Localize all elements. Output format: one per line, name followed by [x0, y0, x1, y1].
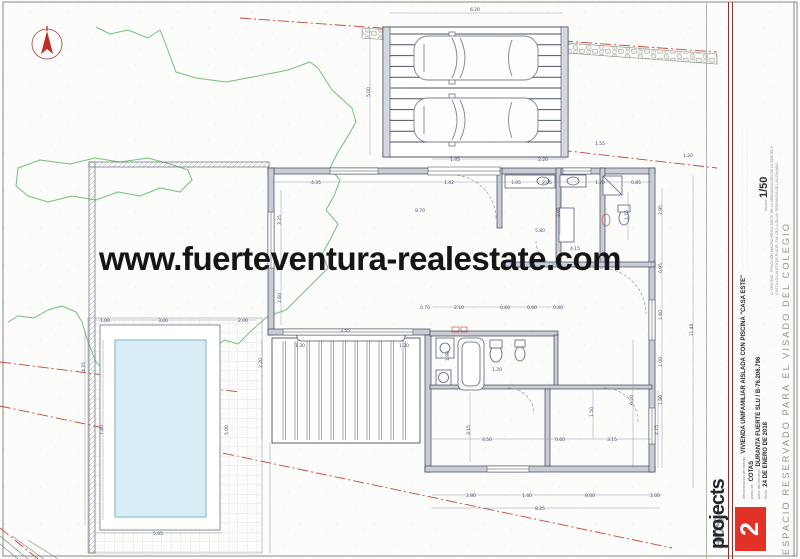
- fine-print-1: ········································…: [741, 126, 745, 267]
- logo-projects: projects: [707, 479, 730, 549]
- svg-text:1.42: 1.42: [444, 180, 454, 186]
- pool: [100, 325, 220, 530]
- sheet-number: 2: [736, 522, 765, 536]
- svg-text:5.05: 5.05: [153, 531, 163, 537]
- svg-text:8.25: 8.25: [535, 506, 545, 512]
- field-autor-label: autor del encargo: [757, 469, 761, 499]
- field-fecha-label: fecha: [764, 490, 768, 499]
- svg-text:5.00: 5.00: [366, 87, 372, 97]
- svg-text:2.05: 2.05: [556, 207, 562, 217]
- situacion-line-2: CASTILLO CALETA DE FUSTE, T.M. DE LA OLI…: [775, 162, 779, 295]
- svg-text:0.60: 0.60: [555, 437, 565, 443]
- svg-text:5.80: 5.80: [535, 228, 545, 234]
- sheet-number-badge: 2: [735, 507, 766, 551]
- fine-print-2: ········································…: [746, 126, 750, 267]
- svg-text:7.40: 7.40: [99, 425, 105, 435]
- boundary-wall-left: [89, 162, 95, 553]
- field-autor-value: DURANTA FUERTE SLU / B-76.206.796: [756, 357, 762, 467]
- bathtub: [458, 338, 484, 390]
- titleblock-separator: [706, 2, 707, 559]
- titleblock-red-rule-2: [732, 2, 733, 559]
- scale-label: escala: [764, 200, 768, 211]
- svg-text:2.10: 2.10: [454, 305, 464, 311]
- field-plano: plano deCOTAS: [749, 481, 755, 499]
- svg-text:8.70: 8.70: [415, 208, 425, 214]
- svg-text:3.15: 3.15: [466, 425, 472, 435]
- svg-text:1.20: 1.20: [683, 153, 693, 159]
- svg-text:1.50: 1.50: [589, 407, 595, 417]
- situacion-line-1: C/ CENTRAL, FRACCIÓN MACRO RESULTANTE DE…: [770, 146, 774, 295]
- svg-text:8.00: 8.00: [585, 493, 595, 499]
- svg-text:2.20: 2.20: [538, 157, 548, 163]
- svg-text:1.90: 1.90: [445, 351, 451, 361]
- svg-text:2.00: 2.00: [238, 318, 248, 324]
- svg-text:0.60: 0.60: [527, 305, 537, 311]
- svg-text:0.70: 0.70: [420, 305, 430, 311]
- svg-text:1.75: 1.75: [624, 210, 630, 220]
- titleblock-red-rule: [728, 2, 729, 559]
- svg-text:1.55: 1.55: [595, 141, 605, 147]
- boundary-wall-top: [89, 162, 269, 167]
- scale-value: 1/50: [758, 177, 770, 198]
- svg-text:3.25: 3.25: [277, 215, 283, 225]
- shower: [603, 176, 622, 195]
- svg-text:1.30: 1.30: [295, 343, 305, 349]
- svg-text:1.20: 1.20: [492, 367, 502, 373]
- drawing-sheet: 6.205.001.452.201.551.204.351.421.052.05…: [0, 0, 800, 559]
- field-fecha-value: 24 DE ENERO DE 2018: [763, 422, 769, 487]
- carport: [383, 27, 568, 157]
- field-denominacion-label: denominación del trabajo: [742, 457, 746, 499]
- title-block: acsprojects 2 denominación del trabajoVI…: [704, 2, 800, 559]
- svg-text:2.00: 2.00: [650, 493, 660, 499]
- svg-text:1.00: 1.00: [658, 357, 664, 367]
- field-plano-value: COTAS: [749, 461, 755, 482]
- svg-text:1.00: 1.00: [100, 318, 110, 324]
- svg-text:4.25: 4.25: [81, 362, 87, 372]
- field-denominacion: denominación del trabajoVIVIENDA UNIFAMI…: [741, 454, 747, 499]
- svg-text:4.35: 4.35: [311, 180, 321, 186]
- svg-text:1.60: 1.60: [658, 310, 664, 320]
- svg-text:2.80: 2.80: [466, 493, 476, 499]
- svg-text:0.40: 0.40: [553, 305, 563, 311]
- vanity-sink: [436, 338, 454, 358]
- svg-text:2.60: 2.60: [277, 293, 283, 303]
- svg-text:11.40: 11.40: [689, 324, 695, 337]
- washer: [436, 370, 451, 385]
- svg-text:0.60: 0.60: [500, 305, 510, 311]
- reserved-stamp-text: ESPACIO RESERVADO PARA EL VISADO DEL COL…: [781, 222, 791, 555]
- svg-text:2.75: 2.75: [654, 425, 660, 435]
- svg-text:1.20: 1.20: [399, 343, 409, 349]
- toilet: [490, 340, 502, 362]
- svg-text:5.00: 5.00: [224, 425, 230, 435]
- field-denominacion-value: VIVIENDA UNIFAMILIAR AISLADA CON PISCINA…: [741, 275, 747, 454]
- svg-text:4.50: 4.50: [482, 437, 492, 443]
- svg-text:2.20: 2.20: [258, 358, 264, 368]
- floor-plan-svg: 6.205.001.452.201.551.204.351.421.052.05…: [0, 0, 800, 559]
- svg-text:1.45: 1.45: [450, 157, 460, 163]
- car-2: [414, 94, 538, 146]
- scale-field: escala1/50: [758, 198, 770, 211]
- field-autor: autor del encargoDURANTA FUERTE SLU / B-…: [756, 466, 762, 499]
- svg-text:2.05: 2.05: [542, 180, 552, 186]
- svg-text:6.20: 6.20: [629, 395, 635, 405]
- car-1: [414, 32, 538, 84]
- bath2-vanity: [560, 175, 586, 187]
- svg-text:2.95: 2.95: [658, 205, 664, 215]
- svg-text:0.85: 0.85: [631, 180, 641, 186]
- svg-text:3.15: 3.15: [607, 437, 617, 443]
- field-fecha: fecha24 DE ENERO DE 2018: [763, 487, 769, 499]
- svg-text:3.55: 3.55: [340, 328, 350, 334]
- svg-text:1.05: 1.05: [511, 180, 521, 186]
- svg-text:6.20: 6.20: [470, 7, 480, 13]
- svg-text:1.20: 1.20: [595, 180, 605, 186]
- field-plano-label: plano de: [750, 484, 754, 499]
- watermark-text: www.fuerteventura-realestate.com: [38, 240, 682, 278]
- svg-text:1.80: 1.80: [658, 395, 664, 405]
- svg-text:1.40: 1.40: [522, 493, 532, 499]
- bidet: [515, 340, 525, 361]
- svg-text:3.00: 3.00: [158, 318, 168, 324]
